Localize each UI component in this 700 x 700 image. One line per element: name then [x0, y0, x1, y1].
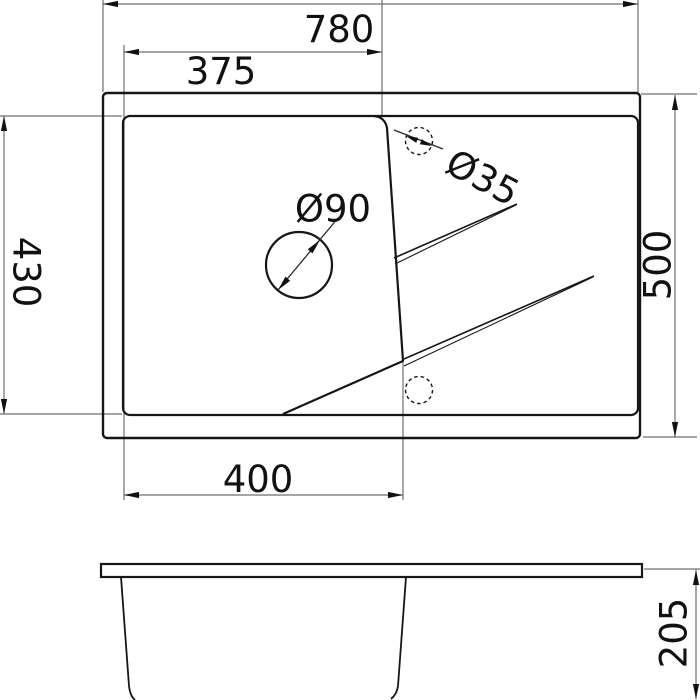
label-bowl-depth: 430 [5, 237, 48, 308]
arrowhead-500-top [672, 95, 678, 110]
sink-outer-edge [103, 93, 640, 438]
technical-drawing-canvas: 780 375 400 430 500 205 Ø90 Ø35 [0, 0, 700, 700]
arrowhead-430-bottom [1, 399, 7, 414]
drainboard-groove-lower-a [404, 276, 594, 359]
arrowheads [1, 1, 699, 699]
arrowhead-500-bottom [672, 422, 678, 437]
dimension-labels: 780 375 400 430 500 205 Ø90 Ø35 [5, 8, 696, 668]
arrowhead-780-right [623, 1, 638, 7]
extension-lines [0, 0, 700, 569]
label-bowl-width-bottom: 400 [223, 458, 294, 501]
tap-hole-circle-top [406, 128, 433, 155]
arrowhead-400-right [388, 492, 403, 498]
arrowhead-400-left [124, 492, 139, 498]
bowl-divider-edge [283, 116, 403, 414]
side-view [101, 564, 642, 700]
drainboard-groove-upper-a [394, 204, 517, 258]
side-view-rim [101, 564, 642, 577]
label-drain-hole-diameter: Ø90 [295, 188, 371, 231]
arrowhead-205-bottom [693, 684, 699, 699]
top-view [103, 93, 640, 438]
side-view-bowl-wall-left [121, 577, 135, 700]
label-bowl-width-top: 375 [186, 50, 257, 93]
dimension-lines [4, 4, 696, 699]
arrowhead-205-top [693, 570, 699, 585]
sink-dimension-drawing: 780 375 400 430 500 205 Ø90 Ø35 [0, 0, 700, 700]
label-bowl-height: 205 [653, 598, 696, 669]
drainboard-groove-lower-b [404, 277, 593, 366]
drainboard-groove-upper-b [395, 205, 516, 264]
side-view-bowl-wall-right [391, 577, 406, 699]
arrowhead-430-top [1, 116, 7, 131]
label-overall-width: 780 [304, 8, 375, 51]
label-tap-hole-diameter: Ø35 [439, 141, 526, 215]
label-overall-depth: 500 [637, 230, 680, 301]
tap-hole-circle-bottom [406, 377, 433, 404]
tap-diameter-leader-line [394, 130, 443, 149]
arrowhead-375-left [124, 49, 139, 55]
arrowhead-780-left [103, 1, 118, 7]
